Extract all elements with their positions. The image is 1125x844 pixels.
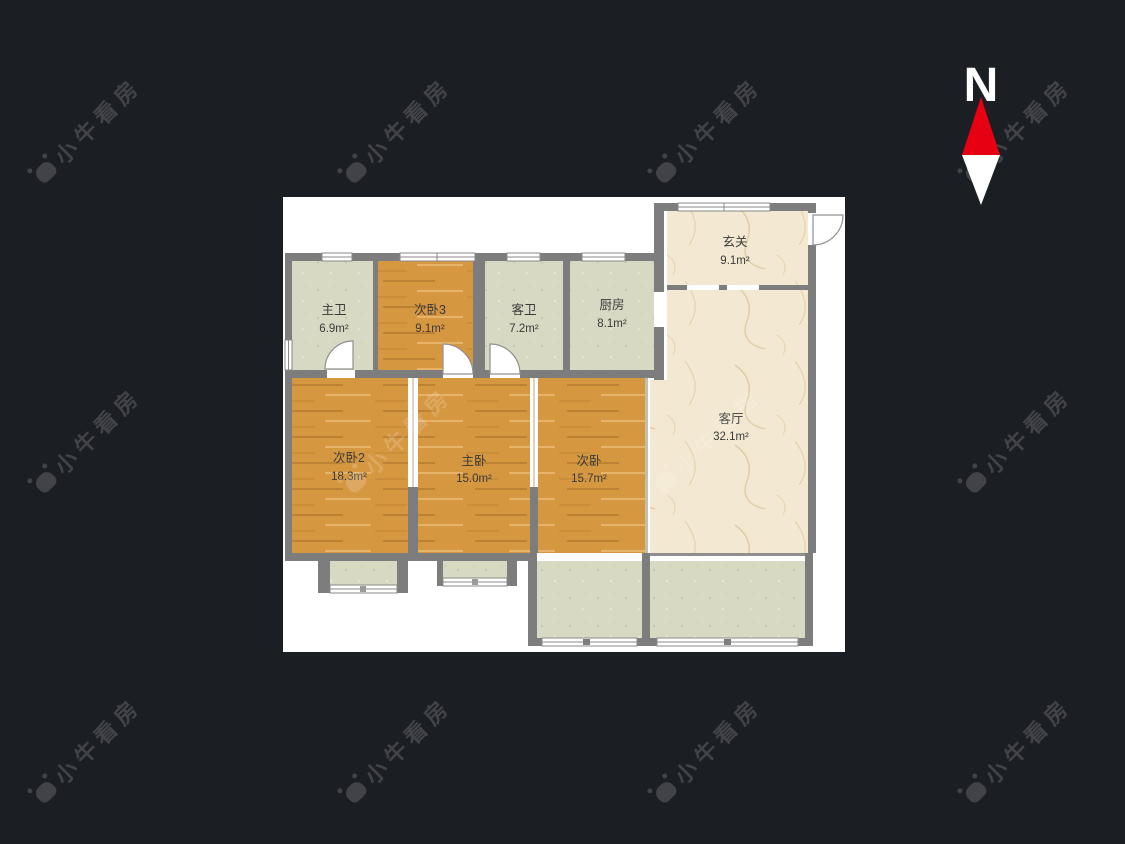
watermark-text: 小牛看房 bbox=[356, 689, 458, 791]
watermark-text: 小牛看房 bbox=[46, 689, 148, 791]
balcony-2-floor bbox=[650, 561, 805, 638]
room-area-entry-hall: 9.1m² bbox=[720, 255, 750, 267]
opening-mullion bbox=[719, 285, 727, 290]
niu-logo-icon bbox=[962, 778, 988, 804]
watermark: 小牛看房 bbox=[956, 349, 1109, 502]
watermark: 小牛看房 bbox=[26, 349, 179, 502]
niu-logo-icon bbox=[342, 158, 368, 184]
entrance-door bbox=[813, 215, 843, 245]
room-name-living-room: 客厅 bbox=[718, 411, 743, 426]
room-name-master-bedroom: 主卧 bbox=[461, 454, 486, 468]
room-area-guest-bath: 7.2m² bbox=[509, 323, 539, 335]
room-name-bedroom-3: 次卧3 bbox=[414, 303, 446, 317]
watermark: 小牛看房 bbox=[956, 659, 1109, 812]
watermark-text: 小牛看房 bbox=[976, 379, 1078, 481]
bay-window-2-floor bbox=[443, 561, 507, 578]
floor-plan-canvas: 主卫 6.9m² 次卧3 9.1m² 客卫 7.2m² 厨房 8.1m² 玄关 … bbox=[283, 197, 845, 652]
room-name-kitchen: 厨房 bbox=[599, 297, 624, 312]
room-name-entry-hall: 玄关 bbox=[722, 234, 747, 249]
watermark: 小牛看房 bbox=[336, 659, 489, 812]
watermark: 小牛看房 bbox=[26, 39, 179, 192]
niu-logo-icon bbox=[32, 158, 58, 184]
compass: N bbox=[945, 45, 1017, 215]
niu-logo-icon bbox=[32, 468, 58, 494]
room-area-bedroom-2: 18.3m² bbox=[331, 471, 367, 483]
room-area-living-room: 32.1m² bbox=[713, 431, 749, 443]
watermark: 小牛看房 bbox=[646, 39, 799, 192]
room-name-guest-bath: 客卫 bbox=[511, 302, 536, 317]
living-room-boundary-line bbox=[645, 378, 648, 553]
room-name-bedroom-2: 次卧2 bbox=[333, 451, 365, 465]
niu-logo-icon bbox=[652, 778, 678, 804]
niu-logo-icon bbox=[652, 158, 678, 184]
room-name-master-bath: 主卫 bbox=[321, 303, 346, 317]
watermark-text: 小牛看房 bbox=[356, 69, 458, 171]
room-area-kitchen: 8.1m² bbox=[597, 318, 627, 330]
watermark-text: 小牛看房 bbox=[666, 689, 768, 791]
room-bedroom-2-floor bbox=[292, 378, 408, 553]
watermark-text: 小牛看房 bbox=[976, 689, 1078, 791]
niu-logo-icon bbox=[342, 778, 368, 804]
room-area-bedroom: 15.7m² bbox=[571, 473, 607, 485]
watermark-text: 小牛看房 bbox=[46, 379, 148, 481]
floor-plan-drawing: 主卫 6.9m² 次卧3 9.1m² 客卫 7.2m² 厨房 8.1m² 玄关 … bbox=[283, 197, 845, 652]
bay-window-1-floor bbox=[330, 561, 397, 585]
room-kitchen-floor bbox=[570, 261, 654, 370]
niu-logo-icon bbox=[962, 468, 988, 494]
watermark-text: 小牛看房 bbox=[46, 69, 148, 171]
niu-logo-icon bbox=[32, 778, 58, 804]
room-name-bedroom: 次卧 bbox=[576, 454, 601, 468]
living-balcony-slider-line bbox=[650, 553, 805, 556]
watermark-text: 小牛看房 bbox=[666, 69, 768, 171]
room-area-master-bath: 6.9m² bbox=[319, 323, 349, 335]
watermark: 小牛看房 bbox=[646, 659, 799, 812]
room-area-bedroom-3: 9.1m² bbox=[415, 323, 445, 335]
balcony-1-floor bbox=[537, 561, 642, 638]
room-area-master-bedroom: 15.0m² bbox=[456, 473, 492, 485]
compass-needle-south bbox=[962, 155, 1000, 205]
watermark: 小牛看房 bbox=[336, 39, 489, 192]
watermark: 小牛看房 bbox=[26, 659, 179, 812]
